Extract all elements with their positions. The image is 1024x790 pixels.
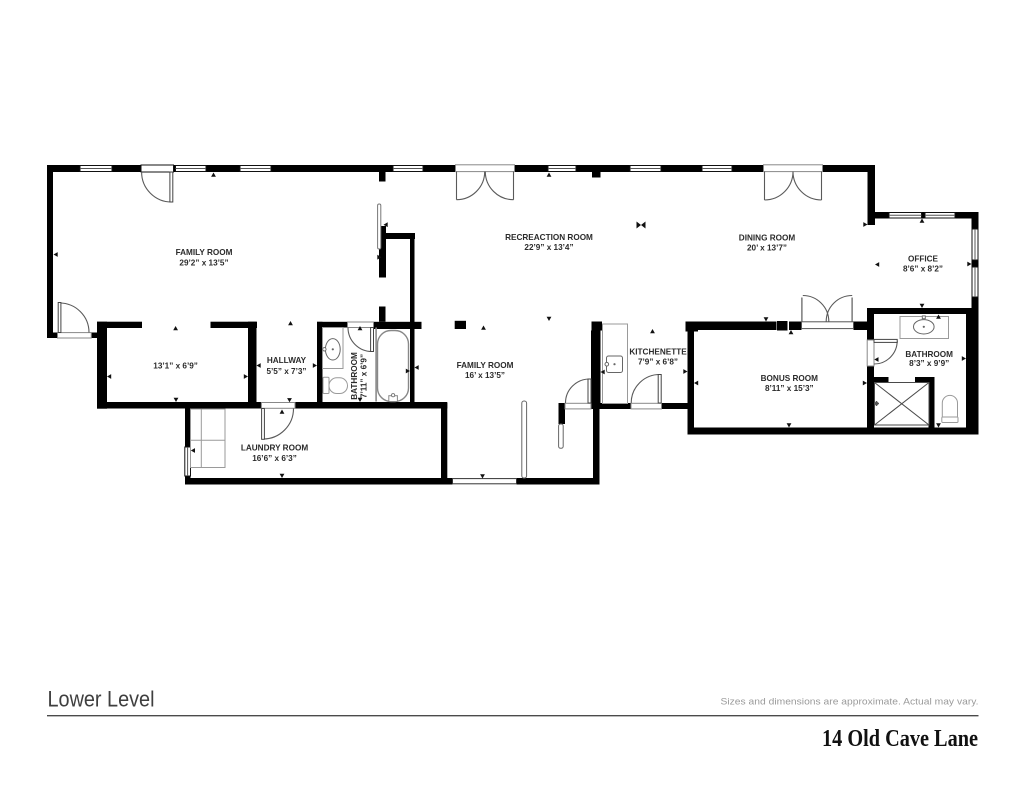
- svg-text:BATHROOM: BATHROOM: [350, 352, 359, 400]
- svg-text:8’6” x 8’2”: 8’6” x 8’2”: [903, 265, 943, 274]
- svg-text:LAUNDRY ROOM: LAUNDRY ROOM: [241, 444, 308, 453]
- svg-text:13’1” x 6’9”: 13’1” x 6’9”: [153, 362, 198, 371]
- svg-text:KITCHENETTE: KITCHENETTE: [629, 348, 687, 357]
- svg-text:HALLWAY: HALLWAY: [267, 356, 307, 365]
- svg-text:14 Old Cave Lane: 14 Old Cave Lane: [822, 726, 978, 752]
- svg-text:16’6” x 6’3”: 16’6” x 6’3”: [252, 454, 297, 463]
- svg-text:FAMILY ROOM: FAMILY ROOM: [176, 248, 233, 257]
- svg-text:7’11” x 6’9”: 7’11” x 6’9”: [360, 354, 369, 398]
- svg-text:BATHROOM: BATHROOM: [905, 350, 953, 359]
- svg-text:22’9” x 13’4”: 22’9” x 13’4”: [524, 243, 573, 252]
- svg-text:DINING ROOM: DINING ROOM: [739, 234, 796, 243]
- svg-text:29’2” x 13’5”: 29’2” x 13’5”: [179, 259, 228, 268]
- svg-text:OFFICE: OFFICE: [908, 255, 939, 264]
- svg-text:5’5” x 7’3”: 5’5” x 7’3”: [266, 367, 306, 376]
- svg-text:20’ x 13’7”: 20’ x 13’7”: [747, 244, 787, 253]
- svg-text:BONUS ROOM: BONUS ROOM: [761, 374, 818, 383]
- svg-text:RECREACTION ROOM: RECREACTION ROOM: [505, 233, 593, 242]
- svg-text:FAMILY ROOM: FAMILY ROOM: [457, 361, 514, 370]
- svg-text:8’11” x 15’3”: 8’11” x 15’3”: [765, 384, 814, 393]
- svg-text:8’3” x 9’9”: 8’3” x 9’9”: [909, 359, 949, 368]
- svg-text:Sizes and dimensions are appro: Sizes and dimensions are approximate. Ac…: [721, 697, 979, 708]
- svg-text:16’ x 13’5”: 16’ x 13’5”: [465, 371, 505, 380]
- svg-text:7’9” x 6’8”: 7’9” x 6’8”: [638, 358, 678, 367]
- svg-text:Lower Level: Lower Level: [48, 687, 155, 712]
